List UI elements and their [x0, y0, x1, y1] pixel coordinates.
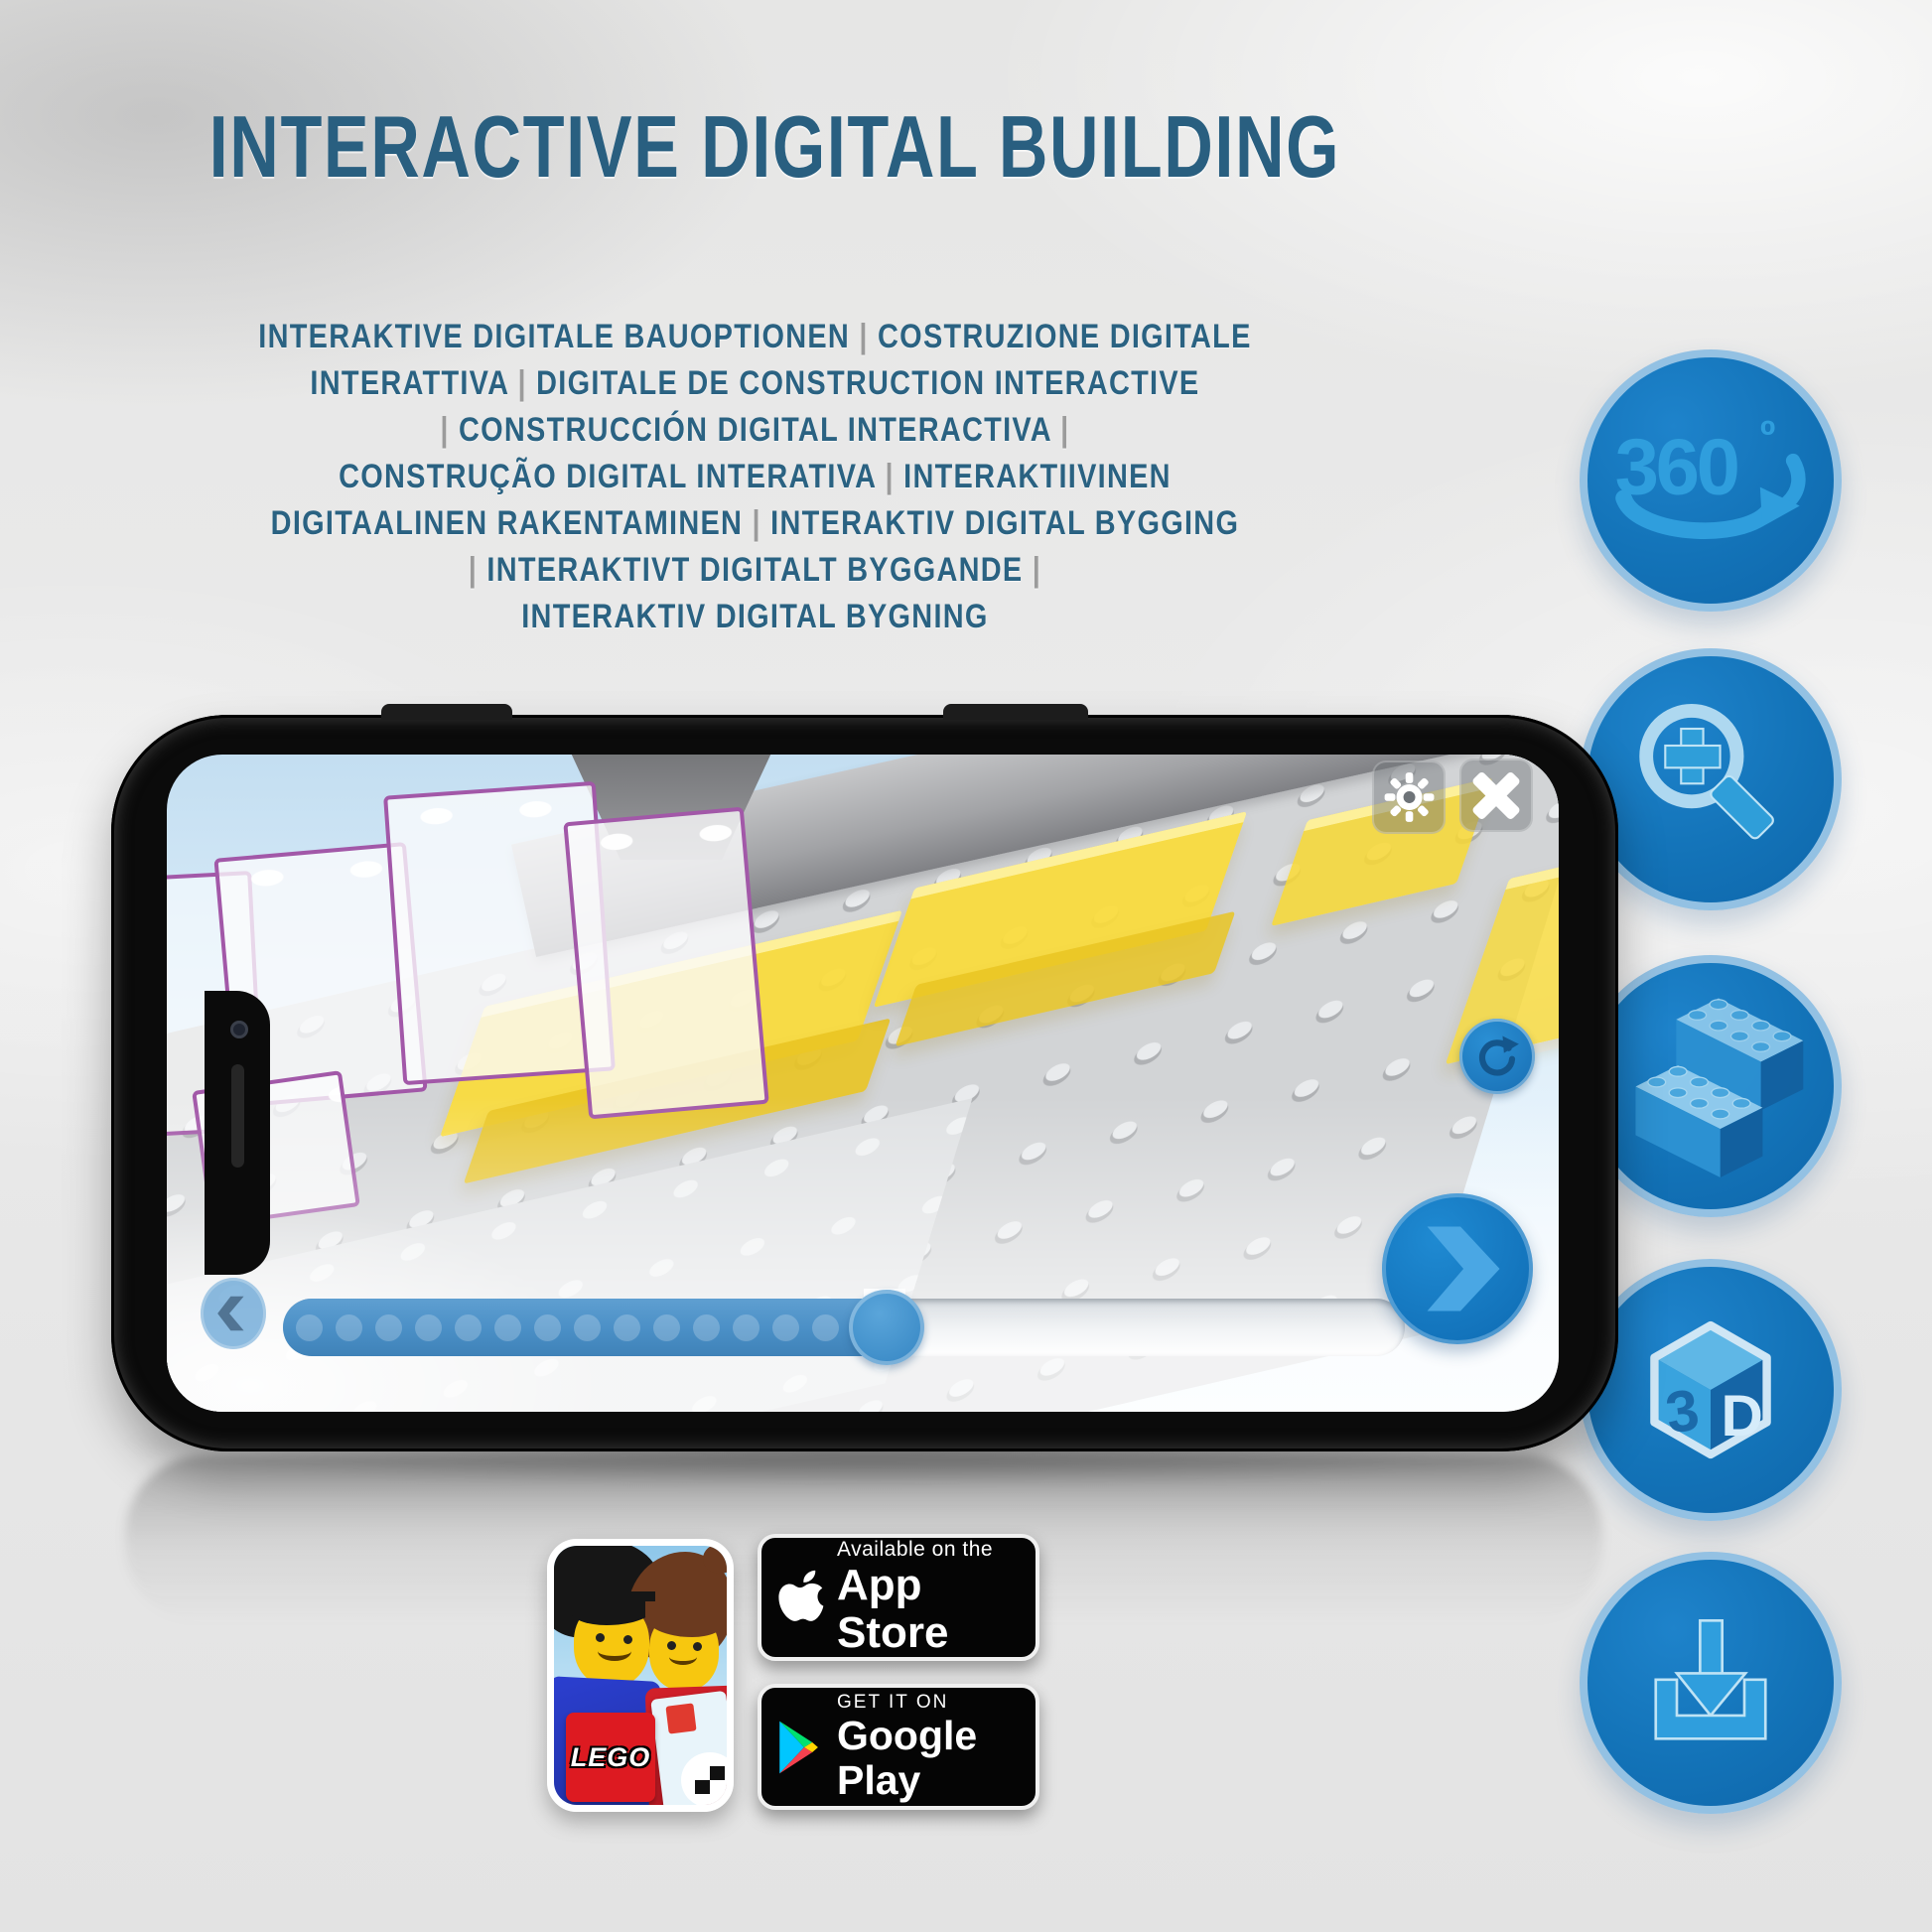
download-glyph — [1626, 1603, 1795, 1762]
3d-cube-glyph: 3 D — [1623, 1303, 1798, 1477]
lego-app-icon[interactable]: LEGO — [547, 1539, 734, 1812]
app-store-text: Available on the App Store — [837, 1538, 1035, 1656]
google-play-icon — [761, 1720, 837, 1775]
step-dot — [812, 1314, 839, 1341]
svg-text:D: D — [1721, 1384, 1762, 1449]
chevron-right-icon — [1382, 1193, 1533, 1344]
step-dot — [336, 1314, 362, 1341]
gear-icon — [1383, 771, 1435, 823]
subtitle-line: INTERATTIVA | DIGITALE DE CONSTRUCTION I… — [258, 360, 1251, 407]
subtitle-line: CONSTRUÇÃO DIGITAL INTERATIVA | INTERAKT… — [258, 454, 1251, 500]
minifig-eye — [667, 1641, 676, 1650]
phone: ★ — [111, 715, 1618, 1451]
svg-text:º: º — [1760, 412, 1775, 459]
subtitle-block: INTERAKTIVE DIGITALE BAUOPTIONEN | COSTR… — [0, 314, 1509, 640]
lego-logo: LEGO — [566, 1713, 655, 1802]
minifig-eye — [693, 1642, 702, 1651]
zoom-in-icon — [1580, 648, 1842, 910]
step-dot — [415, 1314, 442, 1341]
settings-button[interactable] — [1372, 760, 1446, 834]
step-dot — [772, 1314, 799, 1341]
step-dot — [534, 1314, 561, 1341]
minifig-smile — [598, 1641, 631, 1661]
bricks-icon — [1580, 955, 1842, 1217]
google-play-name: Google Play — [837, 1714, 1035, 1802]
phone-screen: ★ — [167, 755, 1559, 1412]
subtitle-line: | CONSTRUCCIÓN DIGITAL INTERACTIVA | — [258, 407, 1251, 454]
lego-bricks-glyph — [1611, 987, 1810, 1185]
subtitle-line: INTERAKTIV DIGITAL BYGNING — [258, 594, 1251, 640]
step-dot — [494, 1314, 521, 1341]
step-dot — [733, 1314, 759, 1341]
close-button[interactable] — [1459, 759, 1533, 832]
earpiece-speaker — [231, 1064, 244, 1168]
phone-power-button — [943, 704, 1088, 720]
minifig-eye — [596, 1633, 605, 1642]
step-dot — [614, 1314, 640, 1341]
lego-logo-text: LEGO — [571, 1742, 651, 1773]
magnifier-plus-glyph — [1626, 695, 1795, 864]
step-dot — [296, 1314, 323, 1341]
instruction-card-red-square — [665, 1703, 696, 1733]
app-store-tagline: Available on the — [837, 1538, 1035, 1562]
chevron-left-icon — [201, 1278, 266, 1349]
reset-rotation-button[interactable] — [1459, 1019, 1535, 1094]
google-play-text: GET IT ON Google Play — [837, 1692, 1035, 1802]
minifig-smile — [669, 1649, 697, 1665]
360-rotation-icon: 360 º — [1580, 349, 1842, 612]
app-store-name: App Store — [837, 1562, 1035, 1656]
page-title: INTERACTIVE DIGITAL BUILDING — [208, 103, 1339, 191]
subtitle-line: INTERAKTIVE DIGITALE BAUOPTIONEN | COSTR… — [258, 314, 1251, 360]
subtitle-line: | INTERAKTIVT DIGITALT BYGGANDE | — [258, 547, 1251, 594]
step-dot — [653, 1314, 680, 1341]
rotate-icon — [1471, 1031, 1523, 1082]
google-play-badge[interactable]: GET IT ON Google Play — [758, 1684, 1039, 1810]
front-camera — [230, 1021, 248, 1038]
apple-logo-icon — [761, 1567, 837, 1628]
google-play-tagline: GET IT ON — [837, 1692, 1035, 1714]
phone-volume-button — [381, 704, 512, 720]
build-progress-slider[interactable]: ★ — [283, 1299, 1405, 1356]
app-store-badge[interactable]: Available on the App Store — [758, 1534, 1039, 1661]
step-dot — [455, 1314, 482, 1341]
360-degrees-glyph: 360 º — [1608, 396, 1813, 565]
download-icon — [1580, 1552, 1842, 1814]
slider-handle[interactable] — [849, 1290, 924, 1365]
qr-code — [695, 1766, 725, 1794]
svg-text:360: 360 — [1615, 422, 1738, 510]
header: INTERACTIVE DIGITAL BUILDING — [0, 103, 1549, 191]
step-dot — [375, 1314, 402, 1341]
step-dot — [574, 1314, 601, 1341]
subtitle-line: DIGITAALINEN RAKENTAMINEN | INTERAKTIV D… — [258, 500, 1251, 547]
next-step-button[interactable] — [1382, 1193, 1533, 1344]
previous-step-button[interactable] — [201, 1278, 266, 1349]
progress-fill — [283, 1299, 900, 1356]
subtitle-lines: INTERAKTIVE DIGITALE BAUOPTIONEN | COSTR… — [258, 314, 1251, 640]
step-dot — [693, 1314, 720, 1341]
